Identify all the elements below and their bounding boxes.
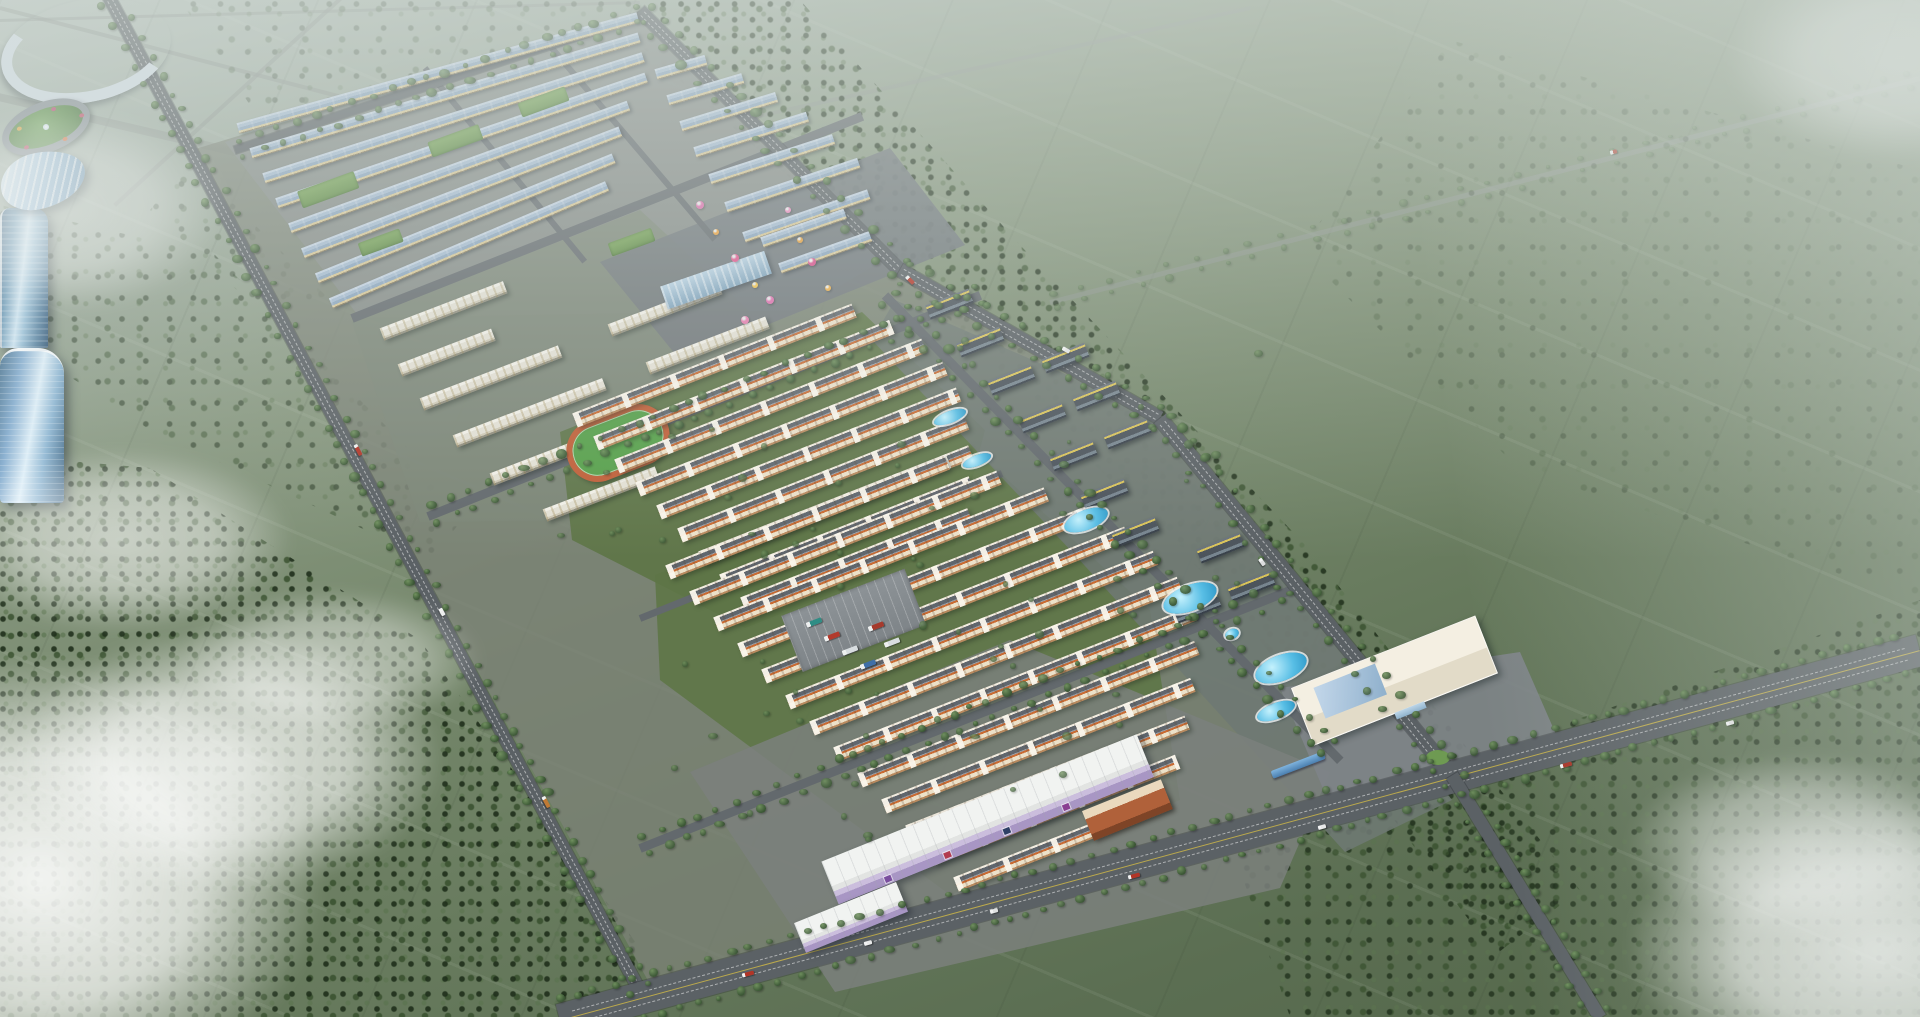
atmospheric-haze-right [0,0,1920,1017]
aerial-render-stage [0,0,1920,1017]
